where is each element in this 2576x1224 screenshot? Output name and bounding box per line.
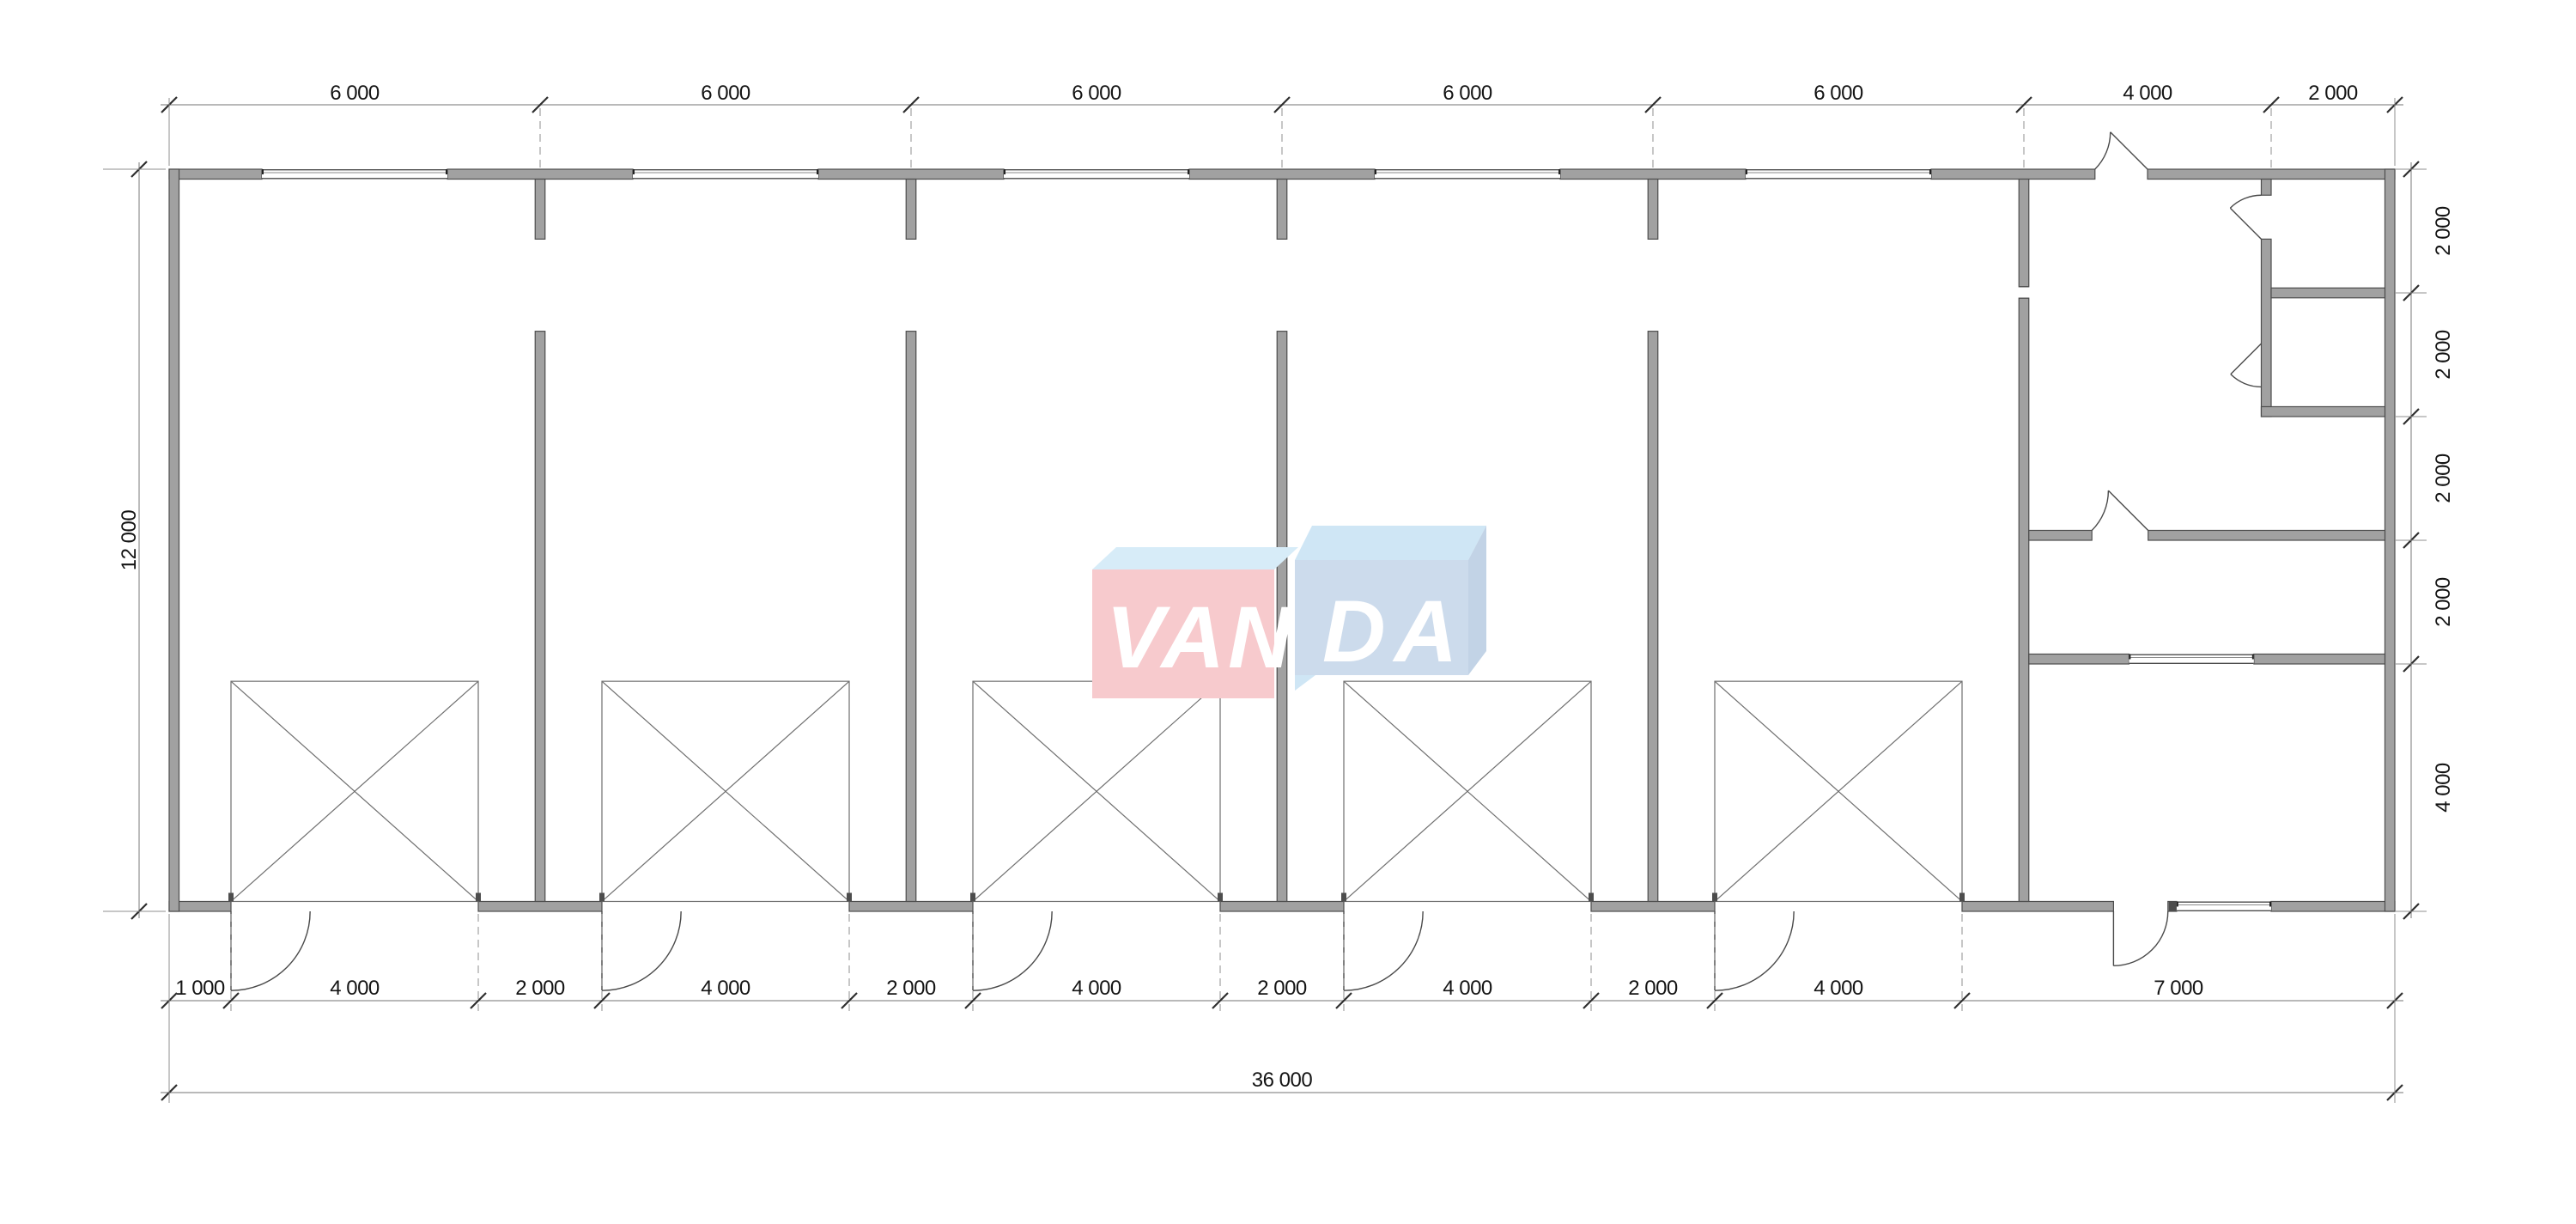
- top-wall: [1189, 169, 1375, 180]
- top-wall: [447, 169, 633, 180]
- dimension-label: 4 000: [1443, 977, 1492, 1000]
- jamb-tick: [1959, 892, 1965, 901]
- partition-stub: [906, 180, 916, 240]
- dimension-label: 2 000: [1257, 977, 1307, 1000]
- room-b-bottom-wall: [2261, 406, 2385, 417]
- bottom-wall: [478, 901, 602, 911]
- right-dimension: 2 0002 0002 0002 0004 000: [2396, 161, 2455, 919]
- bottom-wall: [849, 901, 973, 911]
- jamb-tick: [1589, 892, 1594, 901]
- back-window: [2177, 901, 2271, 911]
- dimension-label: 2 000: [515, 977, 565, 1000]
- partition-stub: [1277, 180, 1287, 240]
- door-jamb-block: [2169, 901, 2177, 911]
- dimension-label: 7 000: [2154, 977, 2203, 1000]
- jamb-tick: [228, 892, 234, 901]
- facade-window: [1004, 169, 1189, 180]
- unit-door-arc: [1715, 911, 1794, 990]
- entrance-door-arc: [2095, 132, 2111, 169]
- dimension-label: 6 000: [330, 82, 380, 105]
- top-wall: [2148, 169, 2395, 180]
- opening-boxes: [228, 681, 1965, 901]
- dimension-label: 6 000: [701, 82, 750, 105]
- partition-stub: [535, 180, 545, 240]
- top-wall: [1931, 169, 2095, 180]
- jamb-tick: [476, 892, 481, 901]
- right-wall: [2385, 169, 2395, 911]
- logo-text-right: DA: [1322, 582, 1466, 680]
- room-b-door-leaf: [2231, 344, 2262, 375]
- jamb-tick: [599, 892, 605, 901]
- walls: [169, 169, 2395, 911]
- total-dimension: 36 000: [161, 914, 2403, 1103]
- jamb-tick: [1712, 892, 1717, 901]
- dimension-label: 4 000: [701, 977, 750, 1000]
- vestibule-door-arc: [2092, 490, 2108, 530]
- dimension-label: 2 000: [2432, 577, 2455, 627]
- logo-top-face-right: [1295, 526, 1486, 560]
- partition-wall: [1648, 332, 1658, 902]
- facade-window: [1375, 169, 1560, 180]
- floor-plan: 6 0006 0006 0006 0006 0004 0002 0001 000…: [0, 0, 2576, 1224]
- dimension-label: 36 000: [1252, 1069, 1313, 1092]
- room-b-door-arc: [2231, 375, 2262, 387]
- top-dimension: 6 0006 0006 0006 0006 0004 0002 000: [161, 82, 2403, 168]
- bottom-wall: [1220, 901, 1344, 911]
- room-wall: [2261, 239, 2271, 417]
- dimension-label: 2 000: [2432, 206, 2455, 256]
- partition-wall: [906, 332, 916, 902]
- jamb-tick: [847, 892, 852, 901]
- dimension-label: 2 000: [2432, 330, 2455, 380]
- vanda-watermark: VANDA: [1092, 526, 1486, 698]
- dimension-label: 4 000: [1814, 977, 1863, 1000]
- interior-window: [2129, 654, 2253, 664]
- bottom-wall: [1962, 901, 2113, 911]
- hall-wall: [2029, 654, 2129, 664]
- page: 6 0006 0006 0006 0006 0004 0002 0001 000…: [0, 0, 2576, 1224]
- dimension-label: 1 000: [175, 977, 225, 1000]
- logo-top-face-left: [1092, 547, 1298, 569]
- exit-door-arc: [2113, 911, 2167, 965]
- facade-window: [633, 169, 818, 180]
- dimension-label: 12 000: [118, 510, 141, 571]
- unit-door-arc: [973, 911, 1052, 990]
- jamb-tick: [1341, 892, 1346, 901]
- entrance-door-leaf: [2111, 132, 2148, 169]
- dimension-label: 4 000: [330, 977, 380, 1000]
- jamb-tick: [1218, 892, 1223, 901]
- room-a-door-arc: [2230, 195, 2261, 208]
- dimension-label: 2 000: [2308, 82, 2358, 105]
- dimension-label: 4 000: [2432, 763, 2455, 813]
- top-wall: [1560, 169, 1746, 180]
- dimension-label: 4 000: [1072, 977, 1121, 1000]
- bottom-wall: [2271, 901, 2395, 911]
- facade-window: [262, 169, 447, 180]
- logo-fold: [1295, 675, 1315, 691]
- dimension-label: 2 000: [2432, 454, 2455, 503]
- left-wall: [169, 169, 179, 911]
- unit-door-arc: [231, 911, 310, 990]
- logo-text-left: VAN: [1106, 588, 1295, 686]
- unit-door-arc: [602, 911, 681, 990]
- jamb-tick: [970, 892, 975, 901]
- top-wall: [818, 169, 1004, 180]
- facade-window: [1746, 169, 1931, 180]
- partition-wall: [535, 332, 545, 902]
- dimension-label: 4 000: [2123, 82, 2172, 105]
- divider-wall: [2019, 180, 2029, 287]
- corridor-wall: [2029, 530, 2092, 540]
- corridor-wall: [2148, 530, 2385, 540]
- left-dimension: 12 000: [103, 161, 166, 919]
- dimension-label: 2 000: [886, 977, 936, 1000]
- dimension-label: 6 000: [1443, 82, 1492, 105]
- bottom-wall: [1591, 901, 1715, 911]
- vestibule-door-leaf: [2108, 490, 2148, 530]
- room-a-bottom-wall: [2271, 288, 2385, 298]
- hall-wall: [2254, 654, 2385, 664]
- bottom-chain-dimension: 1 0004 0002 0004 0002 0004 0002 0004 000…: [161, 914, 2403, 1011]
- dimension-label: 6 000: [1072, 82, 1121, 105]
- unit-door-arc: [1344, 911, 1423, 990]
- windows: [262, 169, 2271, 911]
- room-a-door-leaf: [2230, 208, 2261, 239]
- dimension-label: 6 000: [1814, 82, 1863, 105]
- top-wall: [169, 169, 262, 180]
- divider-wall: [2019, 298, 2029, 901]
- partition-stub: [1648, 180, 1658, 240]
- dimension-label: 2 000: [1628, 977, 1678, 1000]
- room-wall: [2261, 180, 2271, 196]
